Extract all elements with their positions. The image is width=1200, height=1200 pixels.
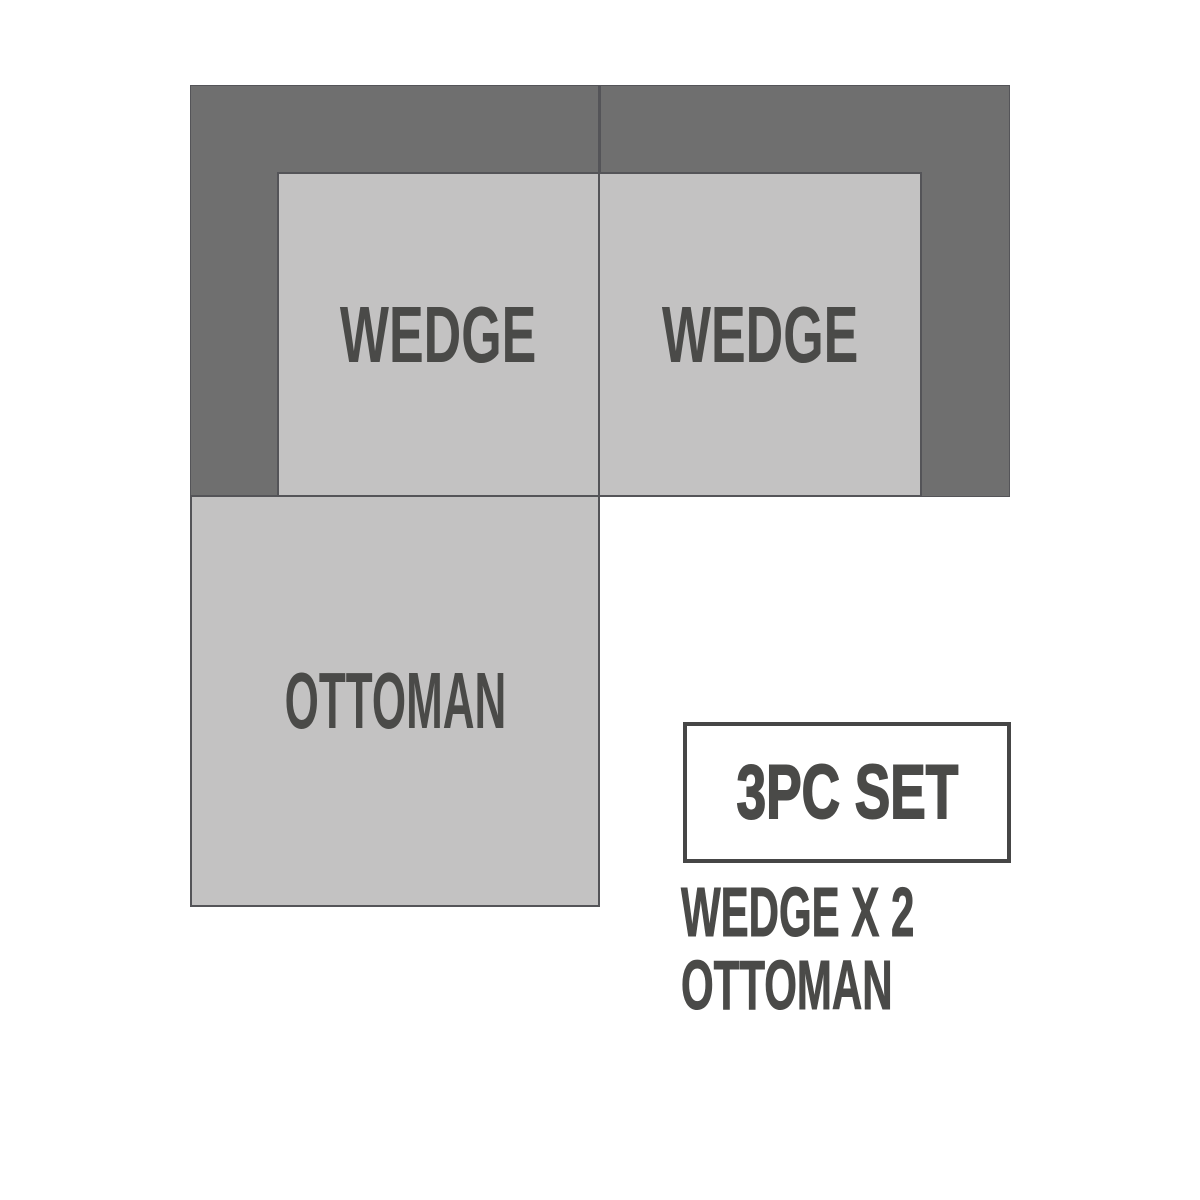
back-seam-line [598,85,601,175]
piece-wedge-left: WEDGE [277,172,600,497]
piece-ottoman-label: OTTOMAN [284,661,506,741]
set-count-label: 3PC SET [736,755,958,831]
piece-wedge-right: WEDGE [598,172,922,497]
piece-wedge-right-label: WEDGE [662,295,858,375]
legend-line-wedges: WEDGE X 2 [681,876,914,949]
legend-line-ottoman: OTTOMAN [681,949,914,1022]
sectional-sofa-diagram: WEDGE WEDGE OTTOMAN 3PC SET WEDGE X 2 OT… [0,0,1200,1200]
piece-ottoman: OTTOMAN [190,495,600,907]
set-count-badge: 3PC SET [683,722,1011,863]
legend: WEDGE X 2 OTTOMAN [681,876,1070,1022]
piece-wedge-left-label: WEDGE [340,295,536,375]
